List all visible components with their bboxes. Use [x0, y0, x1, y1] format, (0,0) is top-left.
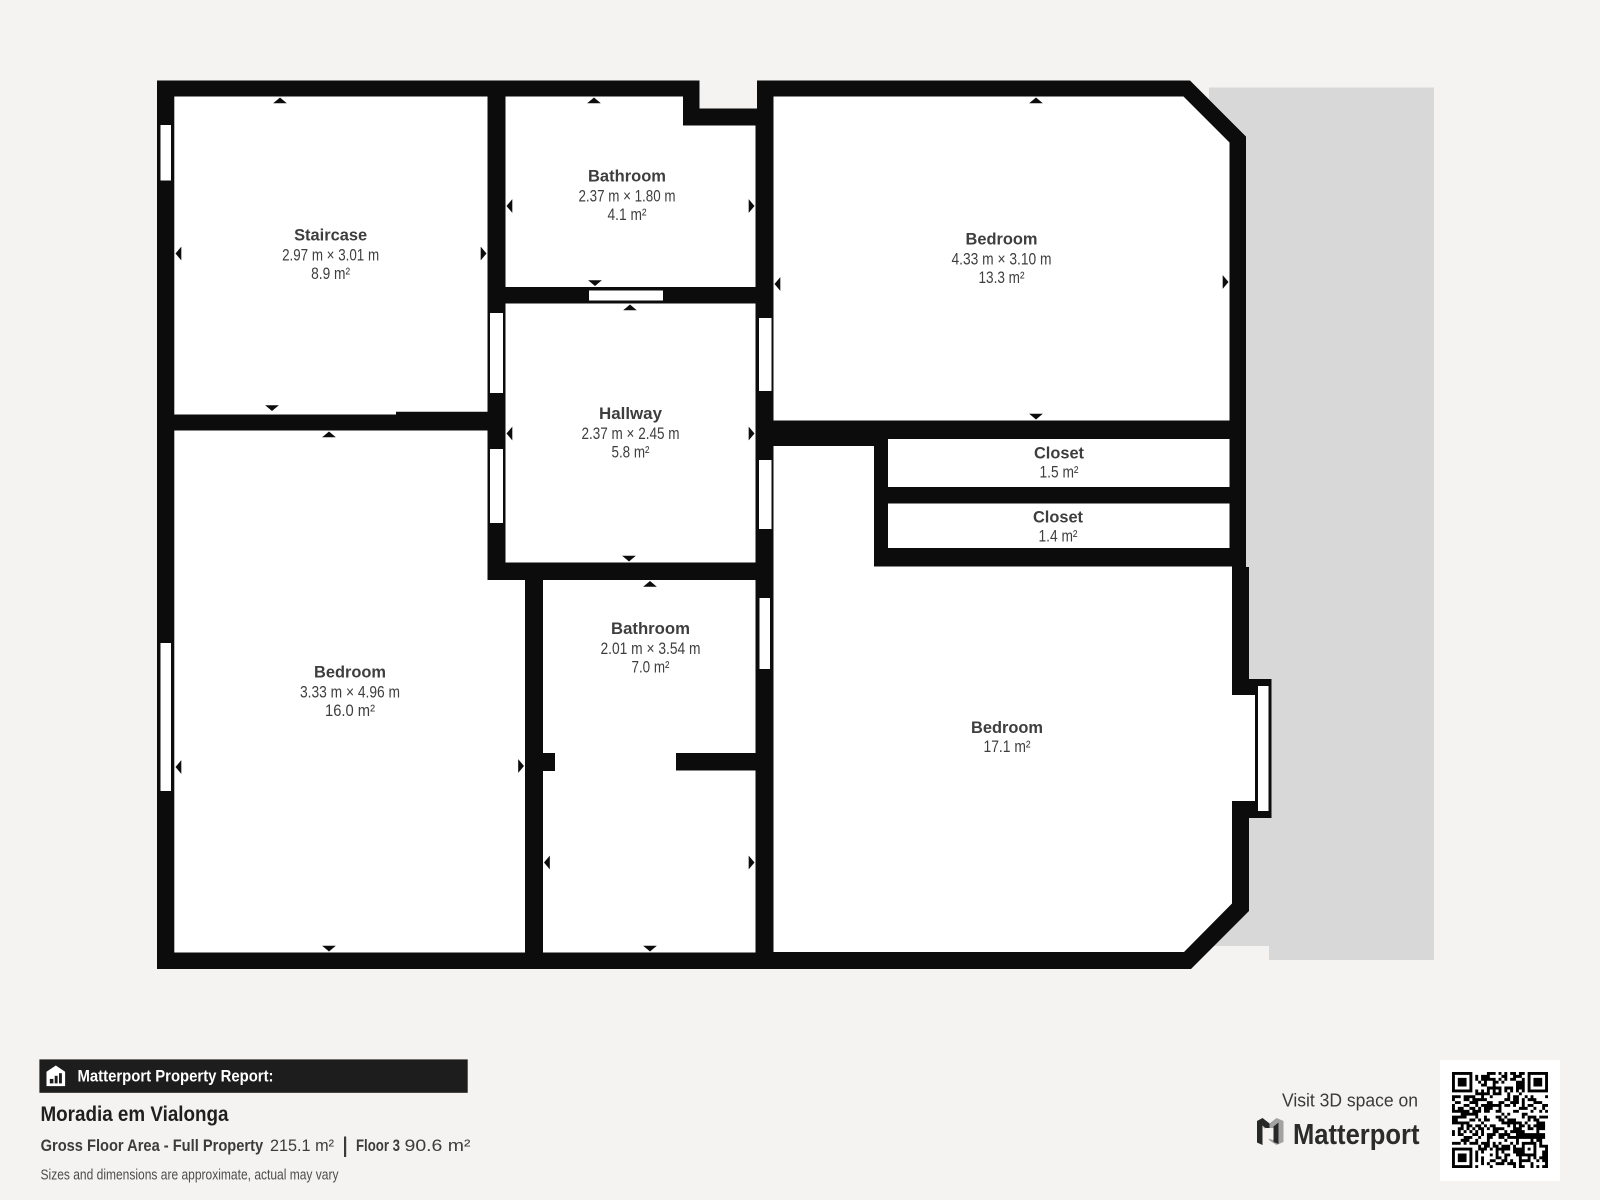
svg-text:2.37 m × 2.45 m: 2.37 m × 2.45 m [582, 425, 680, 443]
svg-text:Staircase: Staircase [294, 226, 367, 245]
svg-text:90.6 m²: 90.6 m² [405, 1136, 471, 1155]
svg-text:Sizes and dimensions are appro: Sizes and dimensions are approximate, ac… [41, 1168, 340, 1184]
svg-text:Bathroom: Bathroom [611, 619, 690, 638]
svg-text:3.33 m × 4.96 m: 3.33 m × 4.96 m [300, 683, 400, 701]
svg-text:Bathroom: Bathroom [588, 167, 666, 186]
svg-text:16.0 m²: 16.0 m² [325, 702, 376, 720]
svg-text:Gross Floor Area - Full Proper: Gross Floor Area - Full Property [41, 1136, 264, 1155]
svg-text:Bedroom: Bedroom [971, 718, 1043, 737]
svg-text:4.1 m²: 4.1 m² [608, 206, 648, 224]
svg-text:1.4 m²: 1.4 m² [1039, 528, 1079, 546]
svg-text:Hallway: Hallway [599, 404, 663, 423]
svg-text:Bedroom: Bedroom [966, 230, 1038, 249]
svg-text:4.33 m × 3.10 m: 4.33 m × 3.10 m [952, 250, 1052, 268]
svg-text:17.1 m²: 17.1 m² [984, 738, 1032, 756]
svg-text:2.01 m × 3.54 m: 2.01 m × 3.54 m [601, 640, 701, 658]
svg-text:2.97 m × 3.01 m: 2.97 m × 3.01 m [282, 247, 379, 265]
svg-text:Matterport: Matterport [1293, 1119, 1420, 1151]
svg-text:5.8 m²: 5.8 m² [612, 443, 650, 461]
svg-text:Visit 3D space on: Visit 3D space on [1282, 1091, 1418, 1111]
svg-text:13.3 m²: 13.3 m² [979, 269, 1026, 287]
svg-text:8.9 m²: 8.9 m² [311, 265, 351, 283]
svg-text:Bedroom: Bedroom [314, 663, 386, 682]
svg-text:Floor 3: Floor 3 [356, 1136, 400, 1155]
svg-text:Closet: Closet [1033, 508, 1083, 527]
svg-text:Closet: Closet [1034, 444, 1084, 463]
svg-text:2.37 m × 1.80 m: 2.37 m × 1.80 m [579, 187, 676, 205]
svg-text:1.5 m²: 1.5 m² [1040, 464, 1080, 482]
svg-text:Moradia em Vialonga: Moradia em Vialonga [41, 1102, 230, 1126]
svg-text:7.0 m²: 7.0 m² [632, 658, 670, 676]
svg-text:215.1 m²: 215.1 m² [270, 1136, 334, 1155]
svg-text:Matterport Property Report:: Matterport Property Report: [78, 1068, 274, 1086]
